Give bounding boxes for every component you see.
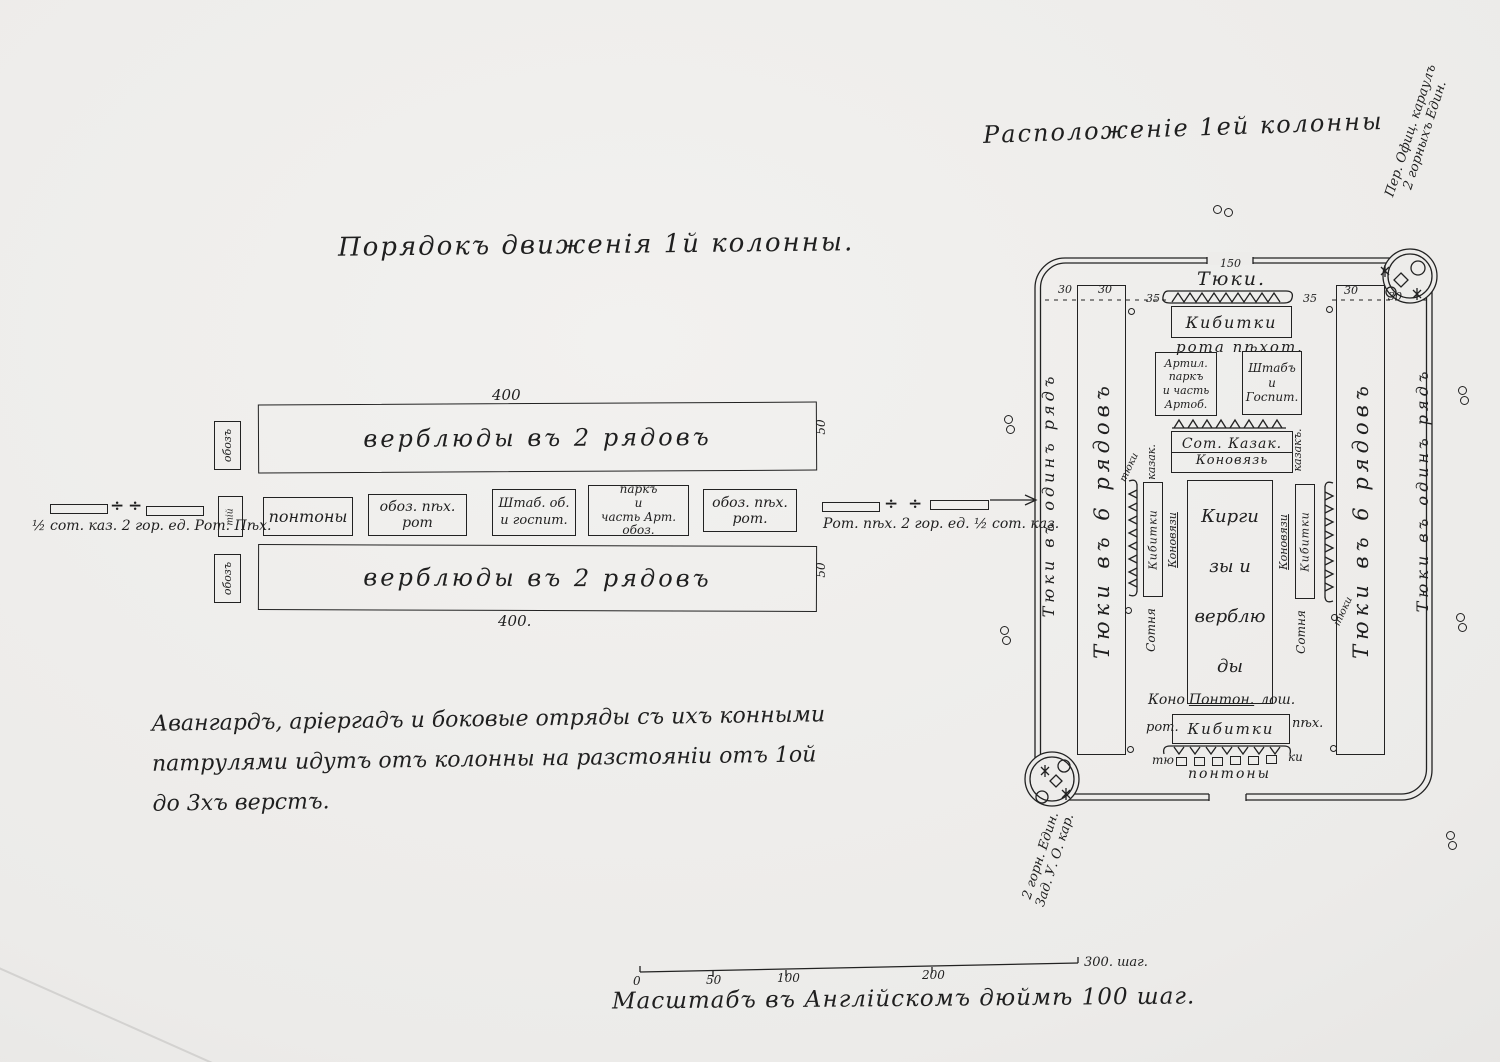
baggage-box-bottom-label: обозъ <box>221 562 234 595</box>
sentry-dot-icon <box>1446 831 1455 840</box>
right-bales-column: Тюки въ 6 рядовъ <box>1336 285 1385 755</box>
baggage-box-top-label: обозъ <box>221 429 234 462</box>
left-konovyazi-label: Коновязи <box>1165 507 1179 573</box>
bales-hatched-bar <box>1158 287 1296 307</box>
sentry-dot-icon <box>1006 425 1015 434</box>
right-kibitki-label: Кибитки <box>1299 511 1312 571</box>
right-horse-line-bar <box>1320 476 1338 606</box>
measure-35-b: 35 <box>1303 292 1317 305</box>
sentry-dot-icon <box>1004 415 1013 424</box>
sentry-dot-icon <box>1213 205 1222 214</box>
march-note: Авангардъ, аріергадъ и боковые отряды съ… <box>151 695 826 824</box>
sentry-dot-icon <box>1331 614 1338 621</box>
cossack-sotnia-box: Сот. Казак. Коновязь <box>1171 431 1293 473</box>
right-group-bottom-label: Сотня <box>1294 605 1308 659</box>
sentry-dot-icon <box>1330 745 1337 752</box>
camel-block-bottom: верблюды въ 2 рядовъ <box>258 544 817 612</box>
artillery-park-camp-box: Артил. паркъ и часть Артоб. <box>1155 352 1217 416</box>
pontoon-horse-line-label: КоноПонтон.лош. <box>1148 692 1295 708</box>
sentry-dot-icon <box>1224 208 1233 217</box>
sentry-dot-icon <box>1127 746 1134 753</box>
left-horse-line-bar <box>1124 476 1142 600</box>
sentry-dot-icon <box>1326 306 1333 313</box>
sentry-dot-icon <box>1460 396 1469 405</box>
left-flank-label: ½ сот. каз. 2 гор. ед. Рот. Пѣх. <box>32 518 271 534</box>
left-group-bottom-label: Сотня <box>1144 603 1158 657</box>
divider-mark: ÷ <box>884 494 898 514</box>
scale-caption: Масштабъ въ Англійскомъ дюймѣ 100 шаг. <box>612 983 1196 1014</box>
scale-tick-100: 100 <box>777 971 800 985</box>
front-guard-label: Пер. Офиц. караулъ 2 горныхъ Един. <box>1377 48 1458 219</box>
baggage-box-top: обозъ <box>214 421 241 470</box>
scale-tick-200: 200 <box>922 968 945 982</box>
divider-mark: ÷ <box>110 496 124 516</box>
bottom-ki-label: ки <box>1288 750 1303 764</box>
artillery-park-box: паркъ и часть Арт. обоз. <box>588 485 689 536</box>
scale-tick-0: 0 <box>633 974 641 988</box>
right-kibitki-box: Кибитки <box>1295 484 1315 599</box>
scale-bar <box>635 952 1095 982</box>
cossack-sotnia-line2: Коновязь <box>1172 453 1292 468</box>
sentry-dot-icon <box>1002 636 1011 645</box>
left-flank-bar-1 <box>50 504 108 514</box>
left-bales-column: Тюки въ 6 рядовъ <box>1077 285 1126 755</box>
measure-30-d: 30 <box>1388 290 1402 303</box>
pontoon-square <box>1230 756 1241 765</box>
camel-block-top-label: верблюды въ 2 рядовъ <box>363 423 712 453</box>
left-bales-column-label: Тюки въ 6 рядовъ <box>1090 381 1114 659</box>
sentry-dot-icon <box>1458 386 1467 395</box>
left-kibitki-box: Кибитки <box>1143 482 1163 597</box>
sentry-dot-icon <box>1456 613 1465 622</box>
right-flank-bar-2 <box>930 500 989 510</box>
march-title: Порядокъ движенія 1й колонны. <box>338 227 855 262</box>
march-top-depth: 50 <box>814 412 828 442</box>
left-kibitki-label: Кибитки <box>1147 509 1160 569</box>
measure-30-a: 30 <box>1058 283 1072 296</box>
camel-block-top: верблюды въ 2 рядовъ <box>258 402 817 474</box>
kibitki-top-box: Кибитки <box>1171 306 1292 338</box>
sentry-dot-icon <box>1448 841 1457 850</box>
march-top-length: 400 <box>492 386 521 404</box>
march-bottom-length: 400. <box>498 612 531 630</box>
pontoon-square <box>1176 757 1187 766</box>
pontoon-square <box>1248 756 1259 765</box>
bottom-pih-label: пѣх. <box>1292 716 1323 731</box>
camp-title: Расположеніе 1ей колонны <box>983 107 1384 149</box>
march-bottom-depth: 50 <box>814 555 828 585</box>
rear-redoubt <box>1025 752 1079 806</box>
infantry-train-box-1: обоз. пѣх. рот <box>368 494 467 536</box>
scanned-diagram-page: Порядокъ движенія 1й колонны. 400 верблю… <box>0 0 1500 1062</box>
right-group-top-label: казакъ. <box>1290 420 1304 480</box>
right-wall-label: Тюки въ одинъ рядъ <box>1411 380 1433 600</box>
staff-hospital-camp-box: Штабъ и Госпит. <box>1242 351 1302 415</box>
left-wall-label: Тюки въ одинъ рядъ <box>1037 385 1059 605</box>
divider-mark: ÷ <box>908 494 922 514</box>
kirghiz-camels-box: Кирги зы и верблю ды <box>1187 480 1273 704</box>
pontoon-square <box>1194 757 1205 766</box>
infantry-train-box-2: обоз. пѣх. рот. <box>703 489 797 532</box>
camel-block-bottom-label: верблюды въ 2 рядовъ <box>363 563 711 592</box>
cossack-sotnia-line1: Сот. Казак. <box>1172 436 1292 453</box>
paper-crease <box>0 959 219 1062</box>
pontoons-label: понтоны <box>1188 766 1271 782</box>
scale-end-label: 300. шаг. <box>1084 955 1148 970</box>
divider-mark: ÷ <box>128 496 142 516</box>
staff-hospital-box: Штаб. об. и госпит. <box>492 489 576 536</box>
kibitki-bottom-box: Кибитки <box>1172 714 1290 744</box>
pontoon-square <box>1212 757 1223 766</box>
sentry-dot-icon <box>1458 623 1467 632</box>
left-flank-bar-2 <box>146 506 204 516</box>
scale-tick-50: 50 <box>706 973 721 987</box>
pontoons-box: понтоны <box>263 497 353 536</box>
pontoon-square <box>1266 755 1277 764</box>
right-konovyazi-label: Коновязи <box>1276 509 1290 575</box>
right-bales-column-label: Тюки въ 6 рядовъ <box>1349 381 1373 659</box>
horse-line-top <box>1168 416 1290 432</box>
sentry-dot-icon <box>1125 607 1132 614</box>
baggage-box-bottom: обозъ <box>214 554 241 603</box>
right-flank-bar-1 <box>822 502 880 512</box>
bottom-tyu-label: тю <box>1152 753 1174 767</box>
sentry-dot-icon <box>1128 308 1135 315</box>
sentry-dot-icon <box>1000 626 1009 635</box>
